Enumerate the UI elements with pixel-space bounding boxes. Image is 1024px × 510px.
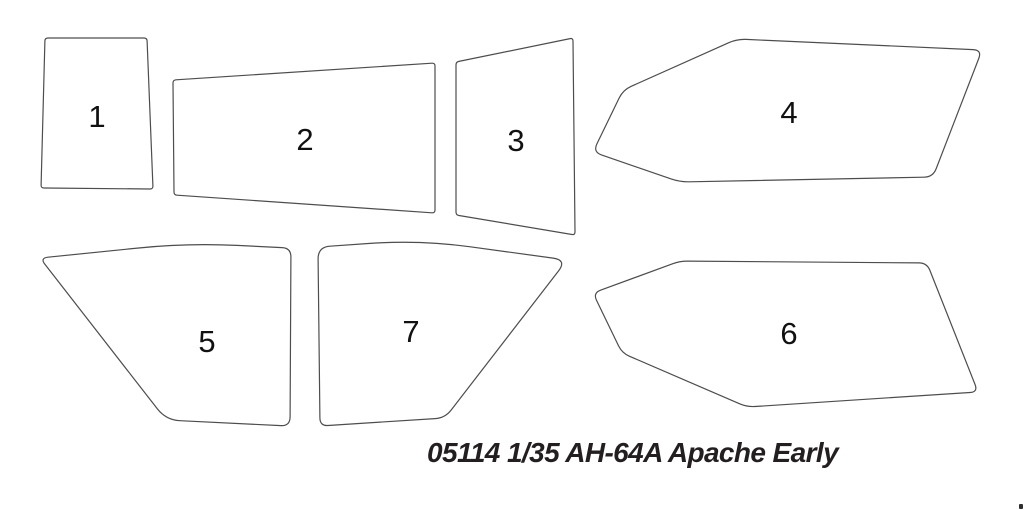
- part-outline-7: [318, 242, 562, 425]
- part-outline-5: [43, 245, 291, 426]
- parts-diagram: 1234567 05114 1/35 AH-64A Apache Early: [0, 0, 1024, 510]
- part-number-5: 5: [198, 324, 215, 359]
- part-number-1: 1: [88, 99, 105, 134]
- part-number-7: 7: [402, 314, 419, 349]
- part-number-4: 4: [780, 95, 797, 130]
- parts-outlines-canvas: 1234567: [0, 0, 1024, 510]
- kit-caption: 05114 1/35 AH-64A Apache Early: [427, 436, 838, 470]
- part-number-2: 2: [296, 122, 313, 157]
- corner-speck: [1019, 504, 1023, 509]
- part-number-3: 3: [507, 123, 524, 158]
- part-number-6: 6: [780, 316, 797, 351]
